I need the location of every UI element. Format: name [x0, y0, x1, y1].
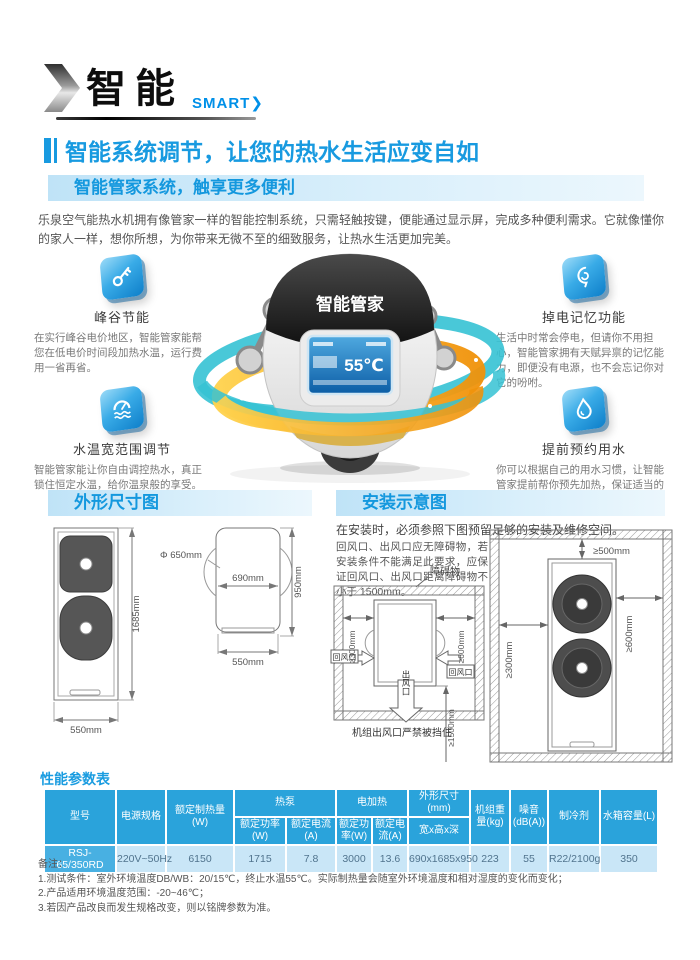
obstacle-label: 障碍物 — [430, 565, 460, 578]
feature-tile — [99, 385, 144, 433]
dim-fan-diameter: Φ 650mm — [160, 550, 202, 561]
waterdrop-icon — [571, 395, 597, 422]
col-noise: 噪音(dB(A)) — [510, 789, 548, 845]
section-bar-smart-butler: 智能管家系统，触享更多便利 — [48, 175, 644, 201]
feature-temp-range: 水温宽范围调节 智能管家能让你自由调控热水，真正锁住恒定水温，给你温泉般的享受。 — [34, 388, 210, 493]
section-bar-install: 安装示意图 — [336, 490, 665, 516]
feature-title: 提前预约用水 — [496, 439, 672, 458]
clearance-500: ≥500mm — [593, 546, 630, 557]
outlet-label: 出风口 — [401, 670, 411, 696]
col-group-eheater: 电加热 — [336, 789, 408, 817]
clearance-300: ≥300mm — [347, 630, 357, 663]
key-icon — [109, 263, 135, 290]
feature-title: 掉电记忆功能 — [496, 307, 672, 326]
col-power: 电源规格 — [116, 789, 166, 845]
clearance-300: ≥300mm — [504, 641, 515, 678]
clearance-600: ≥600mm — [456, 630, 466, 663]
col-group-heatpump: 热泵 — [234, 789, 336, 817]
page-subtitle: SMART❯ — [192, 94, 264, 112]
col-eh-current: 额定电流(A) — [372, 817, 408, 845]
install-top-view: 障碍物 回风口 回风口 出风口 — [330, 562, 488, 772]
table-title: 性能参数表 — [40, 769, 110, 789]
thermostat-icon — [109, 395, 135, 422]
feature-title: 峰谷节能 — [34, 307, 210, 326]
dim-front-width: 550mm — [70, 725, 102, 736]
feature-title: 水温宽范围调节 — [34, 439, 210, 458]
dimension-diagram: 1685mm 550mm Φ 650mm 690mm 950mm 550mm — [40, 524, 320, 739]
blue-chevron-icon: ❯ — [250, 95, 264, 112]
divider-line — [56, 117, 256, 120]
col-heating: 额定制热量(W) — [166, 789, 234, 845]
robot-illustration: 智能管家 55℃ — [190, 238, 510, 488]
brochure-page: 智能 SMART❯ 智能系统调节，让您的热水生活应变自如 智能管家系统，触享更多… — [0, 0, 700, 960]
feature-tile — [99, 253, 144, 301]
col-refrigerant: 制冷剂 — [548, 789, 600, 845]
col-tank: 水箱容量(L) — [600, 789, 658, 845]
feature-desc: 在实行峰谷电价地区，智能管家能帮您在低电价时间段加热水温，运行费用一省再省。 — [34, 331, 210, 376]
metal-chevron-icon — [40, 64, 82, 112]
feature-power-memory: 掉电记忆功能 生活中时常会停电，但请你不用担心，智能管家拥有天赋异禀的记忆能力，… — [496, 256, 672, 391]
feature-peak-valley: 峰谷节能 在实行峰谷电价地区，智能管家能帮您在低电价时间段加热水温，运行费用一省… — [34, 256, 210, 376]
feature-tile — [561, 253, 606, 301]
col-weight: 机组重量(kg) — [470, 789, 510, 845]
note-item: 2.产品适用环境温度范围：-20~46℃； — [38, 887, 662, 902]
feature-desc: 生活中时常会停电，但请你不用担心，智能管家拥有天赋异禀的记忆能力，即便没有电源，… — [496, 331, 672, 391]
screen-temperature: 55℃ — [344, 356, 384, 375]
col-model: 型号 — [44, 789, 116, 845]
col-hp-power: 额定功率(W) — [234, 817, 286, 845]
headline-bar-icon — [44, 138, 51, 163]
clearance-600: ≥600mm — [624, 615, 635, 652]
dim-side-depth: 690mm — [232, 573, 264, 584]
outlet-caption: 机组出风口严禁被挡住 — [352, 726, 452, 739]
dim-front-height: 1685mm — [131, 595, 142, 632]
header-row-1: 型号 电源规格 额定制热量(W) 热泵 电加热 外形尺寸(mm) 机组重量(kg… — [44, 789, 658, 817]
robot-head-label: 智能管家 — [316, 294, 384, 314]
col-eh-power: 额定功率(W) — [336, 817, 372, 845]
section-bar-dimensions: 外形尺寸图 — [48, 490, 312, 516]
col-dim-sub: 宽x高x深 — [408, 817, 470, 845]
return-air-label-right: 回风口 — [449, 668, 473, 677]
notes: 备注： 1.测试条件：室外环境温度DB/WB：20/15℃，终止水温55℃。实际… — [38, 858, 662, 916]
install-front-view: ≥500mm ≥300mm ≥600mm — [486, 526, 676, 766]
headline: 智能系统调节，让您的热水生活应变自如 — [44, 133, 479, 167]
note-item: 1.测试条件：室外环境温度DB/WB：20/15℃，终止水温55℃。实际制热量会… — [38, 873, 662, 888]
feature-tile — [561, 385, 606, 433]
feature-desc: 智能管家能让你自由调控热水，真正锁住恒定水温，给你温泉般的享受。 — [34, 463, 210, 493]
memory-icon — [571, 263, 597, 290]
note-item: 3.若因产品改良而发生规格改变，则以铭牌参数为准。 — [38, 902, 662, 917]
headline-bar-icon — [54, 138, 57, 163]
dim-side-height: 950mm — [293, 566, 304, 598]
col-dimensions: 外形尺寸(mm) — [408, 789, 470, 817]
page-title: 智能 — [86, 56, 184, 114]
col-hp-current: 额定电流(A) — [286, 817, 336, 845]
dim-side-width: 550mm — [232, 657, 264, 668]
notes-title: 备注： — [38, 858, 662, 873]
